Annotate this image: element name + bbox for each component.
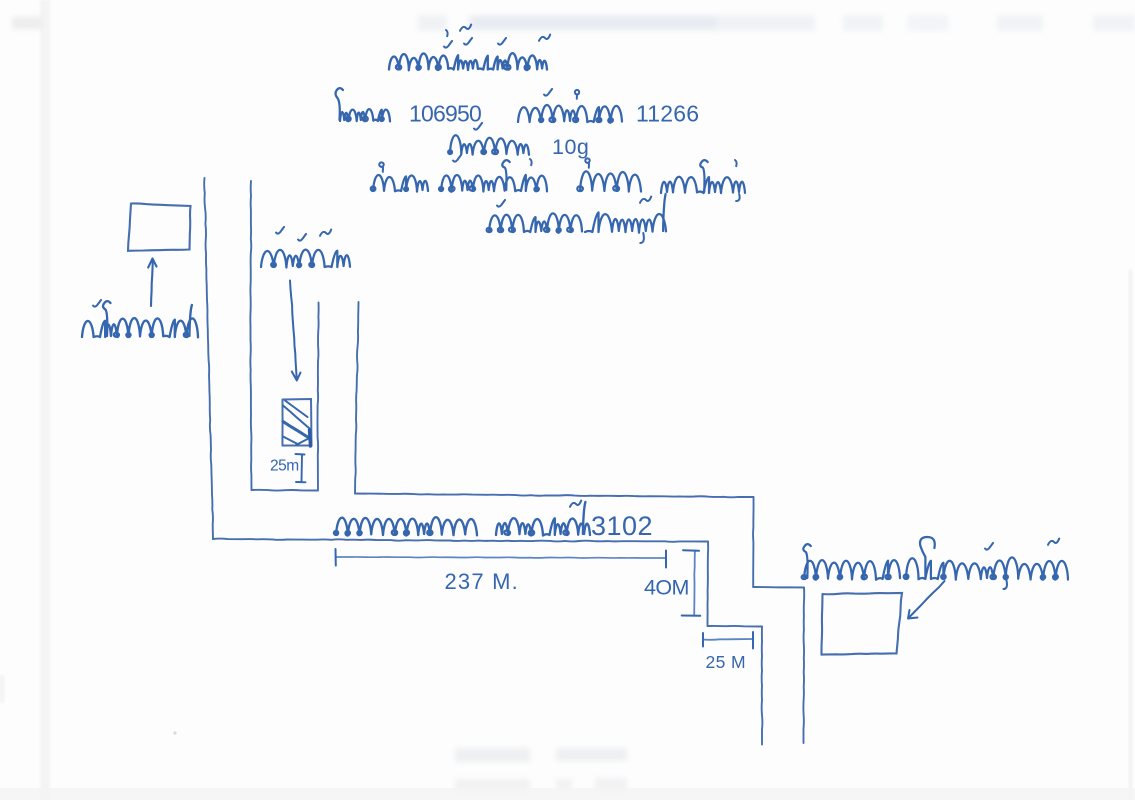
svg-text:4OM: 4OM <box>644 576 689 600</box>
svg-text:25 M: 25 M <box>706 652 747 672</box>
svg-text:10g: 10g <box>552 135 589 159</box>
svg-text:237 M.: 237 M. <box>445 569 519 594</box>
svg-text:106950: 106950 <box>409 101 481 127</box>
svg-text:25m: 25m <box>270 458 299 475</box>
svg-text:11266: 11266 <box>636 101 699 127</box>
svg-text:3102: 3102 <box>591 511 653 541</box>
